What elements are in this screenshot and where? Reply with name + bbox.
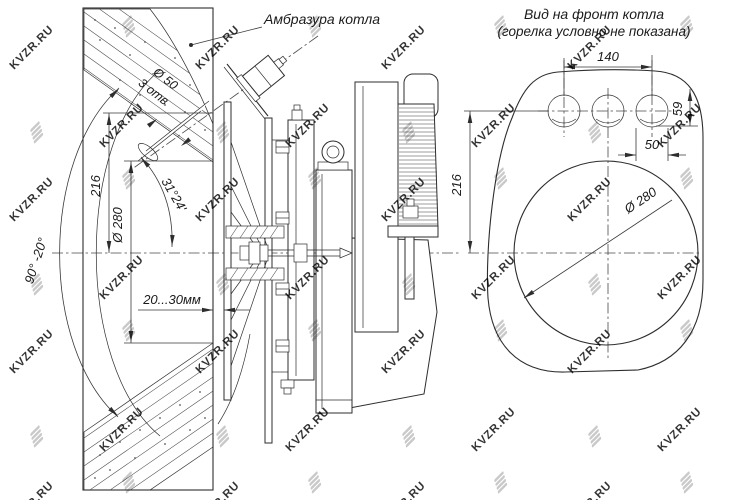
technical-drawing-page: KVZR.RU KVZR.RU bbox=[0, 0, 750, 500]
burner-front-plate bbox=[224, 102, 231, 400]
front-view-boiler: Вид на фронт котла (горелка условно не п… bbox=[449, 6, 703, 372]
swivel-range-arc bbox=[60, 88, 119, 417]
flange-foot bbox=[281, 380, 294, 388]
swivel-range-label: 90° -20° bbox=[21, 236, 50, 286]
dim-dia280-left: Ø 280 bbox=[110, 207, 125, 244]
dim-216-front: 216 bbox=[449, 173, 464, 196]
front-view-subtitle: (горелка условно не показана) bbox=[498, 24, 691, 39]
burner-installation-drawing: KVZR.RU KVZR.RU bbox=[0, 0, 750, 500]
dim-216-left: 216 bbox=[88, 174, 103, 197]
front-view-title: Вид на фронт котла bbox=[524, 6, 664, 22]
dim-59: 59 bbox=[670, 102, 685, 116]
burner-assembly bbox=[218, 47, 438, 443]
embrasure-hatch-lower bbox=[84, 343, 213, 500]
bracket-bolt bbox=[403, 206, 418, 218]
dim-angle-31-24: 31°24' bbox=[158, 175, 190, 215]
intermediate-plate bbox=[265, 118, 272, 443]
burner-mid-housing bbox=[316, 170, 352, 413]
dim-gap-20-30: 20...30мм bbox=[142, 292, 201, 307]
embrasure-callout: Амбразура котла bbox=[263, 11, 380, 27]
flange-bolts-side bbox=[276, 141, 289, 352]
pilot-hole-bore bbox=[138, 101, 209, 161]
bracket-stem bbox=[405, 237, 414, 299]
fan-housing bbox=[355, 82, 398, 332]
intake-bracket bbox=[388, 226, 438, 237]
dim-140: 140 bbox=[597, 49, 619, 64]
left-view-burner-section: 90° -20° bbox=[21, 0, 460, 500]
dim-50: 50 bbox=[645, 137, 660, 152]
flange-bolt-top bbox=[292, 110, 302, 120]
